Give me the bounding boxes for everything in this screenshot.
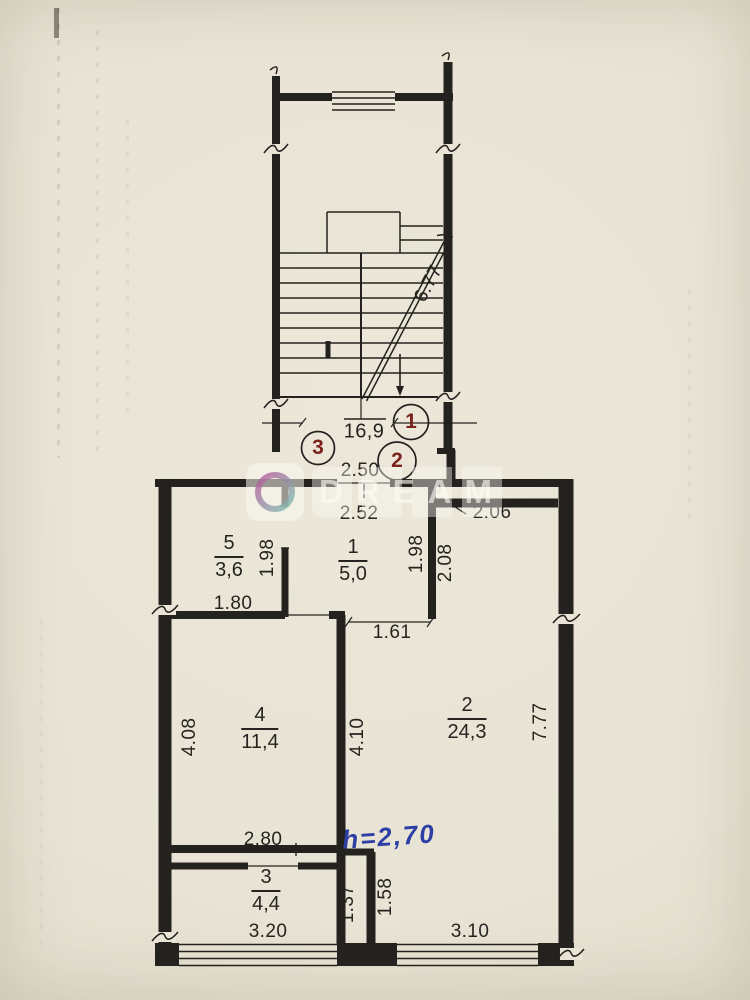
room-4-label: 4 11,4 <box>241 704 278 754</box>
dim-1-98-left: 1.98 <box>257 539 279 578</box>
room-1-label: 1 5,0 <box>338 536 367 586</box>
room-3-area: 4,4 <box>251 892 280 916</box>
dim-3-20: 3.20 <box>249 921 288 943</box>
stairwell-walls <box>272 62 453 452</box>
dim-2-08: 2.08 <box>435 544 457 583</box>
room-4-number: 4 <box>241 704 278 730</box>
room-2-area: 24,3 <box>448 720 487 744</box>
floor-plan-photo: 6.77 16,9 2.50 3 1 2 2.52 2.06 5 3,6 1 5… <box>0 0 750 1000</box>
dim-4-08: 4.08 <box>179 718 201 757</box>
stair-direction-arrows <box>328 234 453 401</box>
dim-2-80: 2.80 <box>244 829 283 851</box>
dim-1-37: 1.37 <box>337 885 359 924</box>
dim-1-58: 1.58 <box>375 878 397 917</box>
dim-1-98-right: 1.98 <box>406 535 428 574</box>
room-1-number: 1 <box>338 536 367 562</box>
room-4-area: 11,4 <box>241 730 278 754</box>
dim-1-80: 1.80 <box>214 593 253 615</box>
room-5-label: 5 3,6 <box>214 532 243 582</box>
unit-marker-1: 1 <box>405 410 417 434</box>
room-3-label: 3 4,4 <box>251 866 280 916</box>
room-2-number: 2 <box>448 694 487 720</box>
watermark-text: DREAM <box>312 467 512 517</box>
watermark-ring-icon <box>246 463 304 521</box>
height-note: h=2,70 <box>341 818 437 855</box>
room-5-number: 5 <box>214 532 243 558</box>
room-5-area: 3,6 <box>214 558 243 582</box>
stair-top-window <box>332 92 395 110</box>
landing-area-label: 16,9 <box>344 421 385 444</box>
dim-3-10: 3.10 <box>451 921 490 943</box>
room-2-label: 2 24,3 <box>448 694 487 744</box>
dim-4-10: 4.10 <box>347 718 369 757</box>
dim-1-61: 1.61 <box>373 622 412 644</box>
dim-7-77: 7.77 <box>530 703 552 742</box>
room-3-number: 3 <box>251 866 280 892</box>
watermark-logo <box>246 463 304 521</box>
unit-marker-3: 3 <box>312 436 324 460</box>
stairs <box>280 212 443 419</box>
bottom-windows <box>155 943 574 966</box>
room-1-area: 5,0 <box>338 562 367 586</box>
